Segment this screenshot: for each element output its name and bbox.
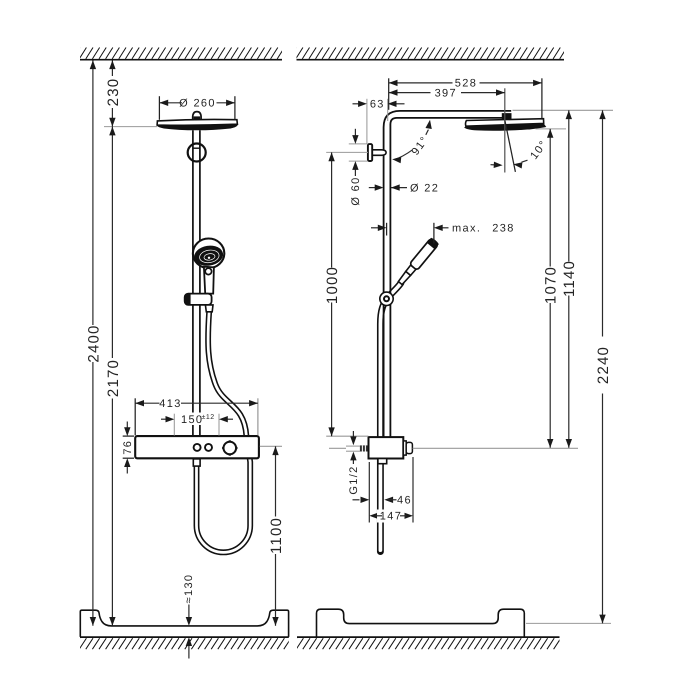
svg-text:Ø 22: Ø 22: [410, 182, 439, 194]
svg-text:max.: max.: [452, 223, 481, 235]
svg-text:150: 150: [181, 414, 203, 426]
svg-text:238: 238: [492, 223, 514, 235]
svg-text:413: 413: [159, 398, 181, 410]
svg-text:63: 63: [370, 99, 385, 111]
svg-text:Ø 60: Ø 60: [350, 176, 362, 205]
svg-text:±12: ±12: [202, 414, 215, 421]
svg-text:G1/2: G1/2: [348, 465, 360, 494]
svg-text:46: 46: [397, 494, 412, 506]
svg-text:397: 397: [435, 87, 457, 99]
svg-text:76: 76: [122, 440, 134, 455]
svg-text:230: 230: [105, 78, 122, 107]
svg-text:1070: 1070: [543, 266, 560, 304]
svg-text:≈130: ≈130: [183, 574, 195, 604]
svg-text:1100: 1100: [268, 517, 285, 554]
svg-text:1000: 1000: [324, 266, 341, 304]
svg-text:1140: 1140: [561, 260, 578, 297]
svg-text:2170: 2170: [105, 359, 122, 397]
svg-text:Ø 260: Ø 260: [179, 98, 216, 110]
svg-text:528: 528: [455, 78, 477, 90]
svg-text:2240: 2240: [595, 346, 612, 384]
svg-text:147: 147: [380, 510, 402, 522]
svg-text:2400: 2400: [85, 324, 102, 362]
